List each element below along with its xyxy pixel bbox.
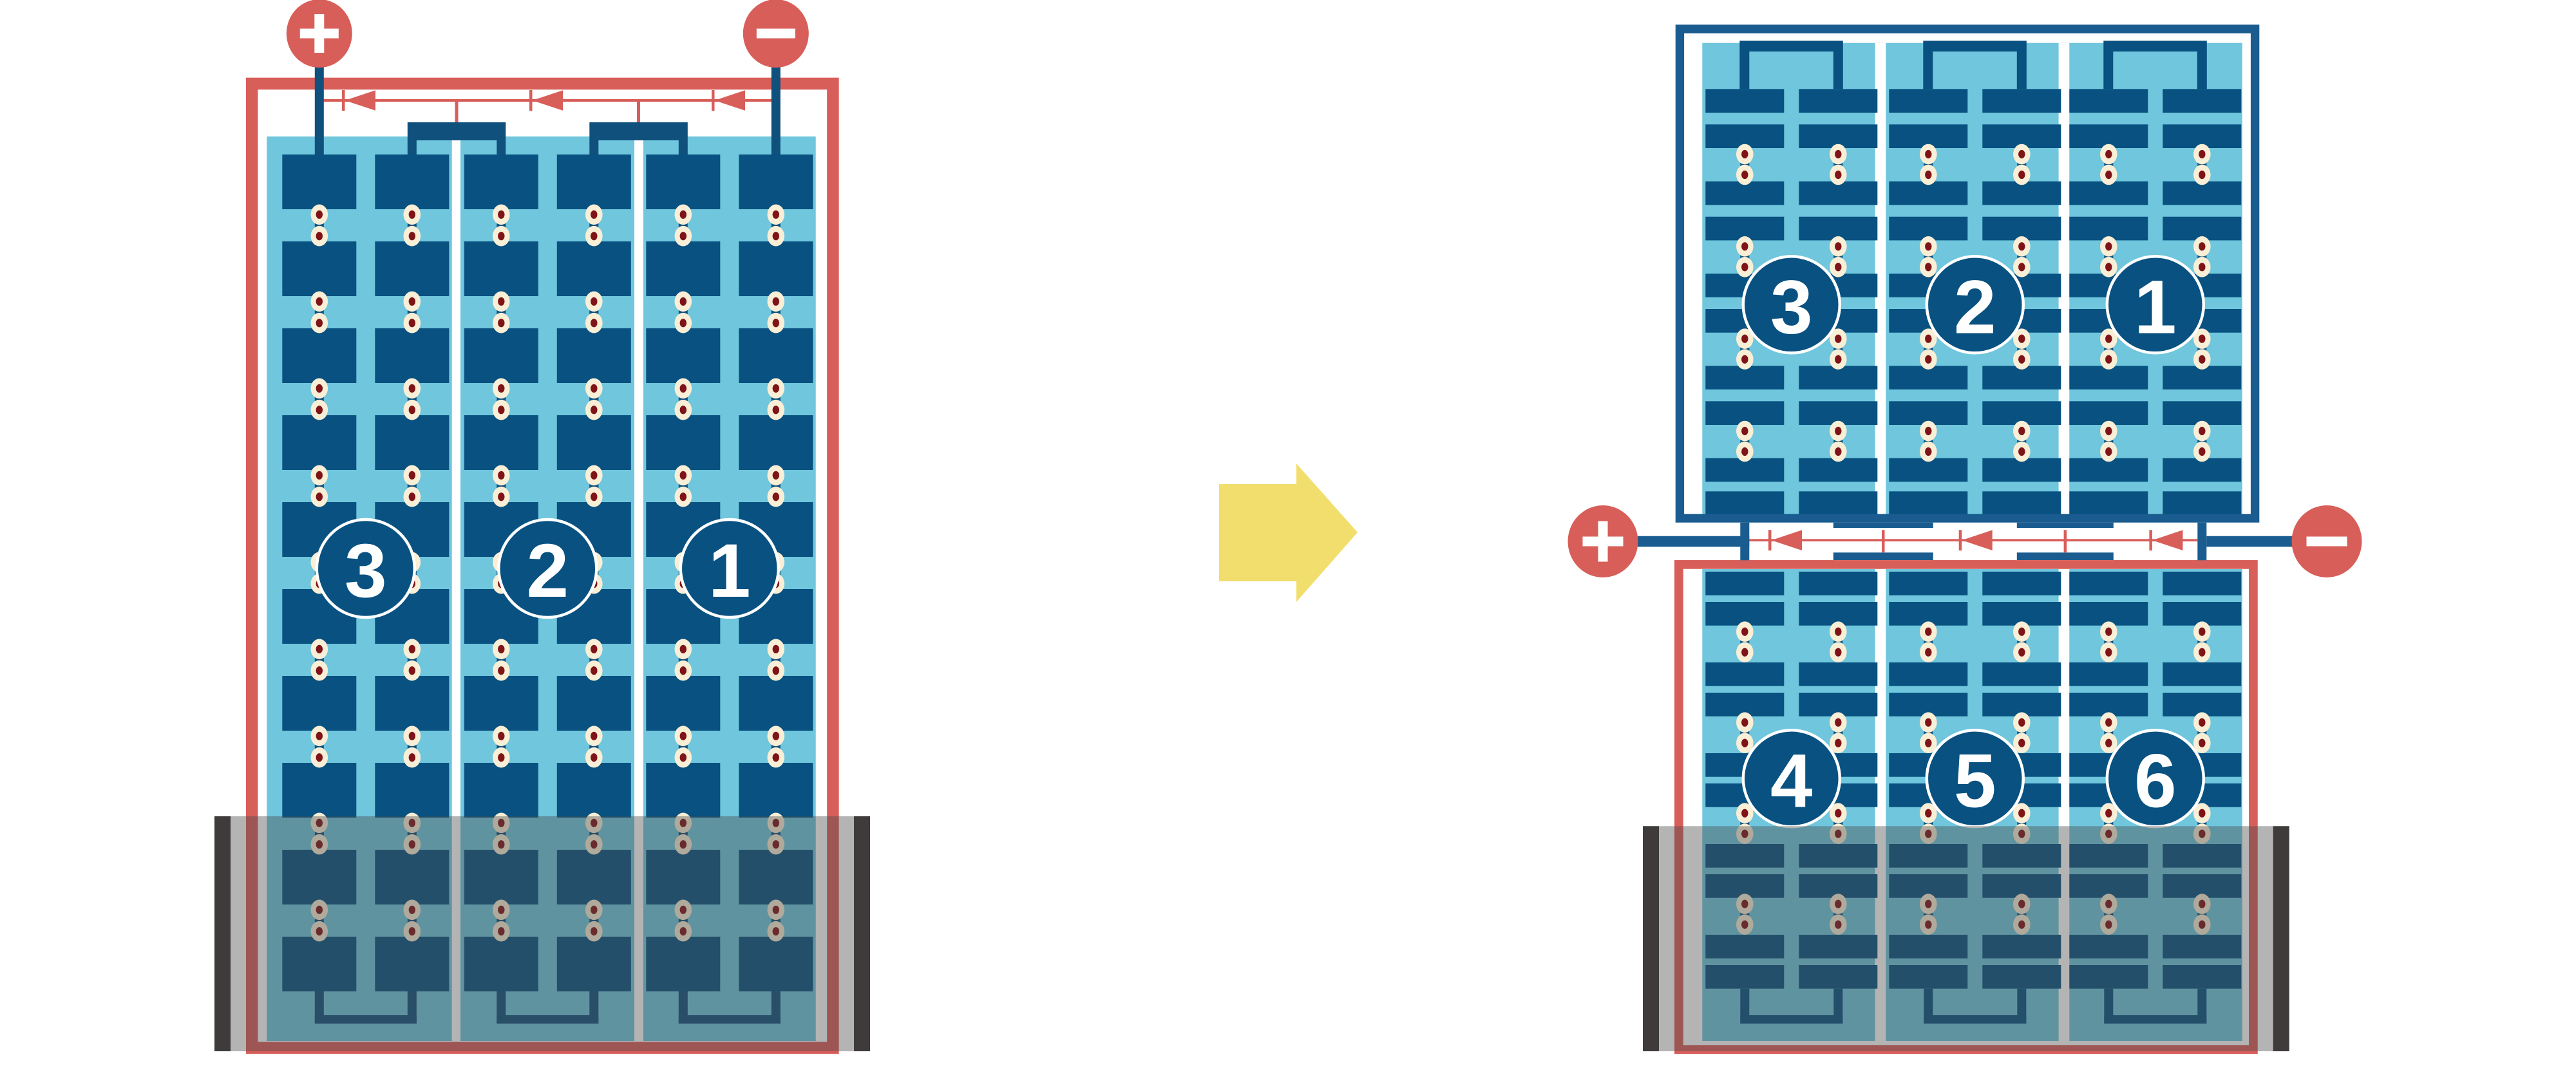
mounting-rail — [214, 816, 231, 1051]
transition-arrow — [1219, 464, 1358, 602]
string-number: 6 — [2134, 738, 2177, 823]
string-badge: 1 — [2107, 256, 2204, 353]
bypass-diode-icon — [529, 90, 563, 111]
junction-tab — [2017, 523, 2114, 528]
positive-terminal — [287, 0, 352, 68]
string-badge: 4 — [1743, 730, 1840, 827]
diode-tap — [1882, 530, 1885, 552]
bypass-diode-bus — [319, 90, 776, 122]
pv-module-reconfiguration-diagram: 3 2 1 — [0, 0, 2576, 1068]
string-badge: 1 — [681, 520, 779, 617]
string-number: 3 — [345, 529, 387, 614]
mounting-rail — [854, 816, 870, 1051]
string-badge: 2 — [1927, 256, 2023, 353]
minus-icon — [2307, 537, 2347, 547]
string-badge: 3 — [1743, 256, 1840, 353]
negative-lead — [772, 61, 781, 155]
string-number: 1 — [2134, 265, 2177, 350]
negative-terminal — [2292, 505, 2362, 577]
string-number: 2 — [526, 529, 569, 614]
bypass-diode-icon — [342, 90, 375, 111]
right-assembly: 3 2 1 4 — [1568, 29, 2362, 1051]
bypass-diode-icon — [1768, 530, 1802, 550]
mounting-rail — [1643, 826, 1659, 1051]
diode-tap — [637, 102, 640, 122]
flood-overlay — [214, 816, 870, 1051]
bypass-diode-icon — [712, 90, 745, 111]
junction-tab — [1833, 552, 1933, 560]
mounting-rail — [2273, 826, 2289, 1051]
string-number: 2 — [1954, 265, 1996, 350]
junction-tab — [2017, 552, 2114, 560]
negative-bus — [2206, 536, 2292, 547]
string-number: 1 — [708, 529, 751, 614]
bypass-diode-icon — [2149, 530, 2183, 550]
string-number: 3 — [1770, 265, 1813, 350]
right-top-module: 3 2 1 — [1680, 29, 2255, 518]
string-badge: 6 — [2107, 730, 2204, 827]
left-module: 3 2 1 — [214, 0, 870, 1051]
bypass-diode-bus — [1749, 530, 2197, 552]
string-badge: 2 — [498, 520, 596, 617]
string-number: 5 — [1954, 738, 1996, 823]
diode-tap — [2064, 530, 2067, 552]
minus-icon — [757, 29, 795, 39]
diode-tap — [455, 102, 459, 122]
negative-terminal — [743, 0, 809, 68]
junction-tab — [1833, 523, 1933, 528]
positive-terminal — [1568, 505, 1638, 577]
string-number: 4 — [1770, 738, 1813, 823]
flood-overlay — [1643, 826, 2289, 1051]
string-badge: 3 — [317, 520, 415, 617]
positive-lead — [315, 61, 324, 155]
positive-bus — [1638, 536, 1749, 547]
string-badge: 5 — [1927, 730, 2023, 827]
negative-lead — [2197, 523, 2206, 561]
bypass-diode-icon — [1959, 530, 1993, 550]
